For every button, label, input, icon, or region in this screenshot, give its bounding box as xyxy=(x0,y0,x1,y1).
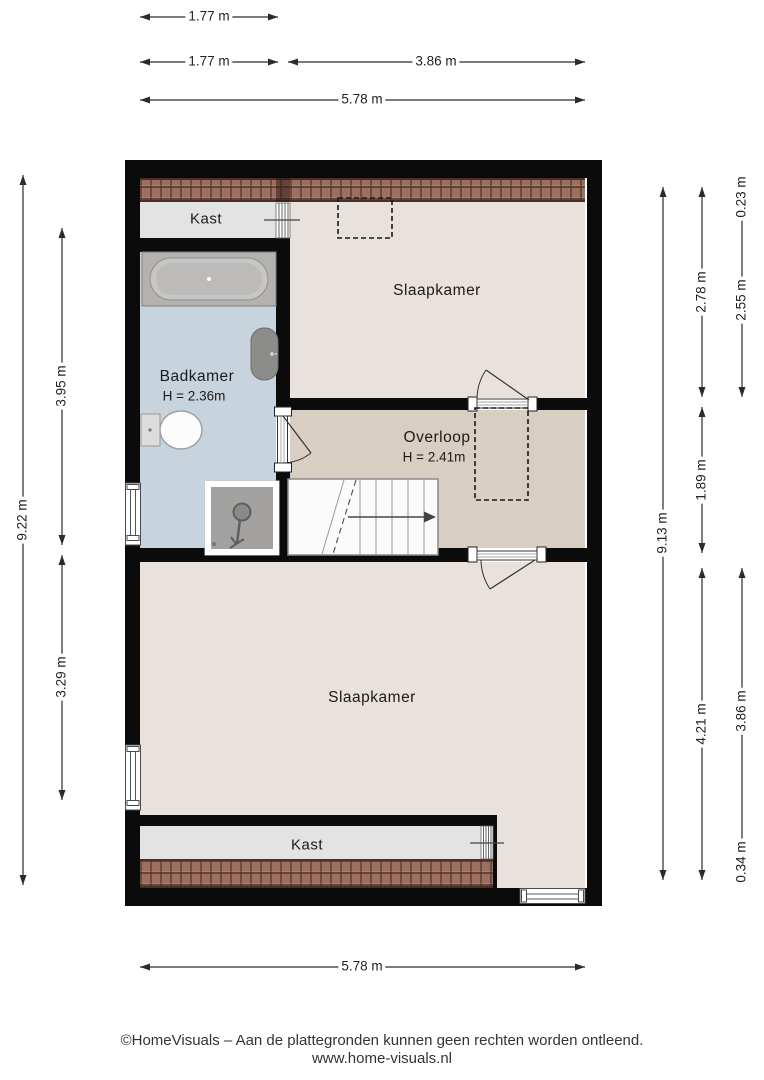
dim-top-row2-left: 1.77 m xyxy=(185,55,232,70)
dim-right-col3-top: 2.55 m xyxy=(735,276,750,323)
dim-right-total: 9.13 m xyxy=(656,509,671,556)
label-kast-bottom: Kast xyxy=(291,837,323,854)
window-slaapkamer-left xyxy=(126,745,141,810)
dim-right-col3-roof-bottom: 0.34 m xyxy=(735,838,750,885)
label-badkamer-height: H = 2.36m xyxy=(163,389,226,404)
footer-disclaimer: ©HomeVisuals – Aan de plattegronden kunn… xyxy=(0,1032,764,1049)
toilet xyxy=(141,411,202,449)
floorplan-page: 1.77 m 1.77 m 3.86 m 5.78 m 5.78 m 9.22 … xyxy=(0,0,764,1080)
dashed-outline-slaapkamer-top xyxy=(338,198,392,238)
dim-top-row2-right: 3.86 m xyxy=(412,55,459,70)
label-kast-top: Kast xyxy=(190,211,222,228)
window-slaapkamer-bottom xyxy=(520,889,585,904)
shower xyxy=(205,481,279,555)
label-badkamer: Badkamer xyxy=(160,368,235,386)
dim-top-row1: 1.77 m xyxy=(185,10,232,25)
sink xyxy=(251,328,278,380)
bathtub xyxy=(142,252,276,306)
dim-right-col3-bottom: 3.86 m xyxy=(735,687,750,734)
dim-left-upper: 3.95 m xyxy=(55,362,70,409)
dim-right-col2-bottom: 4.21 m xyxy=(695,700,710,747)
door-slaapkamer-bottom xyxy=(468,547,546,589)
label-overloop-height: H = 2.41m xyxy=(403,450,466,465)
label-overloop: Overloop xyxy=(404,429,471,447)
door-badkamer xyxy=(275,407,312,472)
footer-website: www.home-visuals.nl xyxy=(0,1050,764,1067)
label-slaapkamer-top: Slaapkamer xyxy=(393,282,481,300)
door-slaapkamer-top xyxy=(468,370,537,411)
pocket-door-kast-bottom xyxy=(470,826,504,859)
label-slaapkamer-bottom: Slaapkamer xyxy=(328,689,416,707)
dim-top-row3: 5.78 m xyxy=(338,93,385,108)
dim-left-lower: 3.29 m xyxy=(55,653,70,700)
floorplan-symbols xyxy=(0,0,764,1080)
window-badkamer-left xyxy=(126,483,141,545)
dim-bottom-total: 5.78 m xyxy=(338,960,385,975)
pocket-door-kast-top xyxy=(264,203,300,238)
dim-right-col2-top: 2.78 m xyxy=(695,268,710,315)
dashed-outline-overloop xyxy=(475,408,528,500)
stairs xyxy=(288,479,438,555)
dim-right-col3-roof-top: 0.23 m xyxy=(735,173,750,220)
dim-left-total: 9.22 m xyxy=(16,496,31,543)
dim-right-col2-mid: 1.89 m xyxy=(695,456,710,503)
